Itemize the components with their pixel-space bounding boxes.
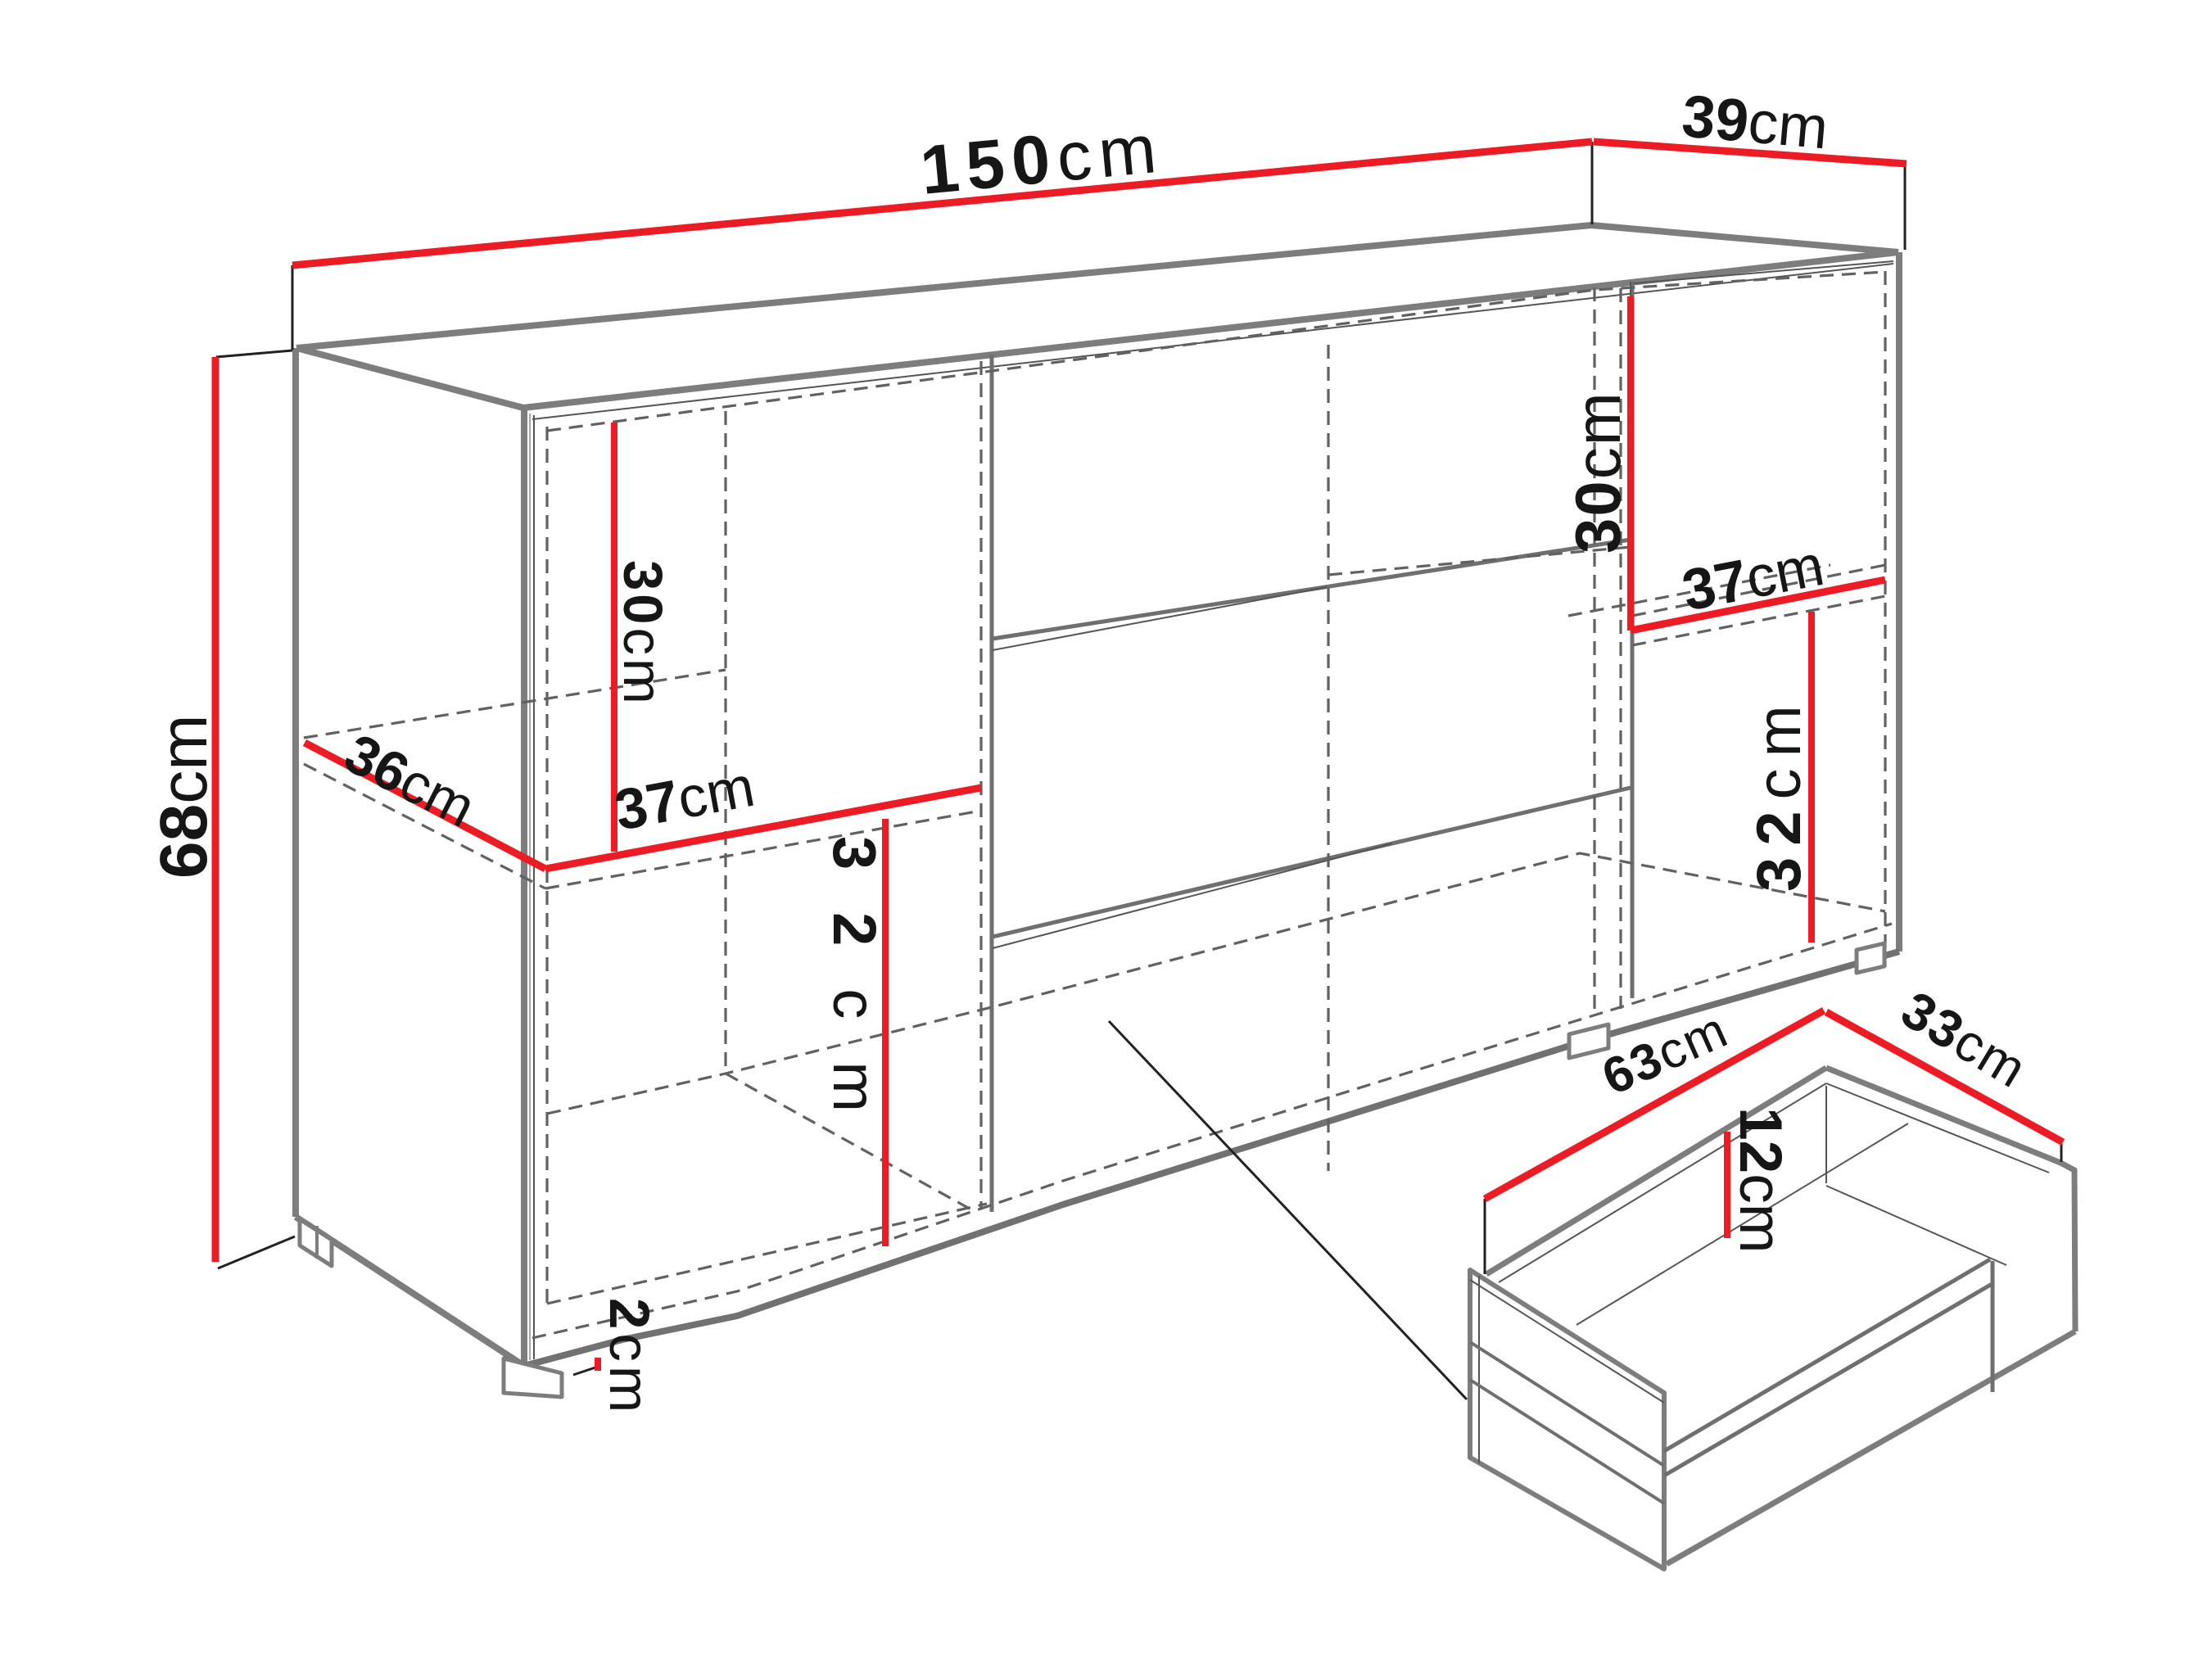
svg-text:39cm: 39cm — [1680, 83, 1831, 161]
svg-text:68cm: 68cm — [147, 714, 221, 879]
svg-text:32cm: 32cm — [1744, 694, 1814, 892]
svg-text:30cm: 30cm — [612, 560, 673, 707]
svg-text:32cm: 32cm — [821, 836, 889, 1155]
svg-text:12cm: 12cm — [1727, 1107, 1794, 1254]
svg-text:30cm: 30cm — [1562, 391, 1634, 554]
svg-text:2cm: 2cm — [598, 1298, 661, 1417]
